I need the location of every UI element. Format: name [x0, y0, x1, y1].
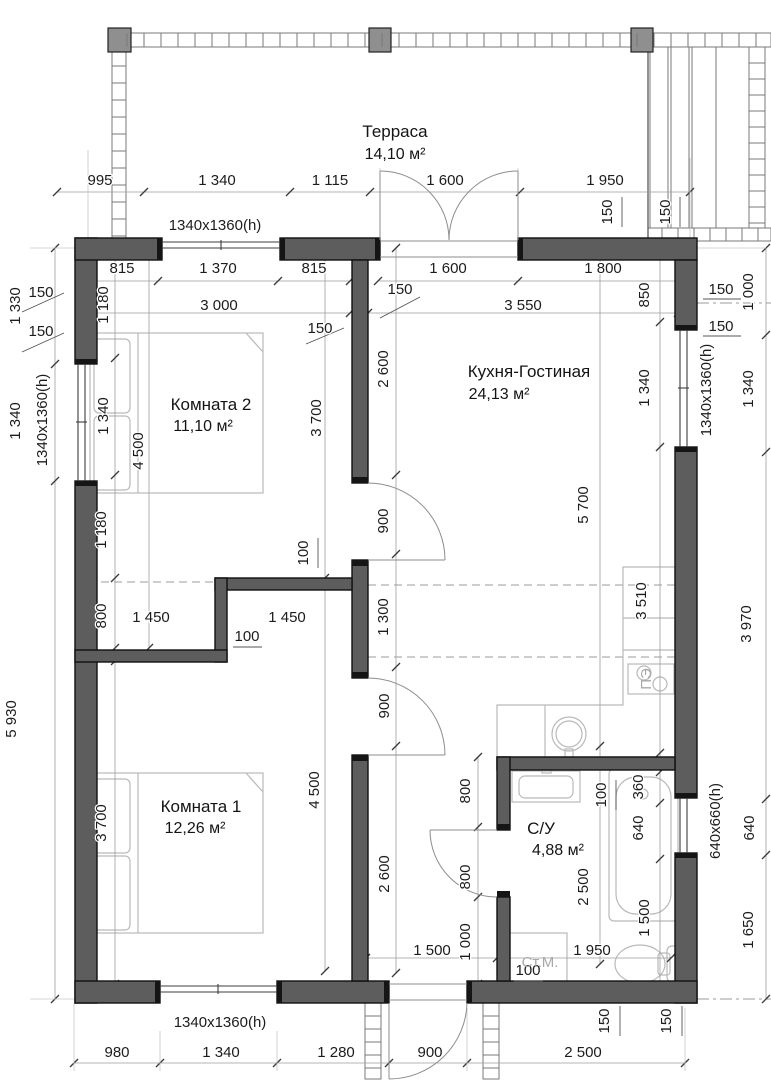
room-name: Кухня-Гостиная: [468, 362, 591, 381]
dimension-label: 1 800: [584, 260, 622, 277]
dimension-label: 1 450: [132, 609, 170, 626]
wall-bath-left-upper: [497, 757, 510, 830]
wall-left-lower: [75, 481, 97, 1003]
dimension-label: 1 180: [95, 286, 112, 324]
dimension-label: 1 280: [317, 1044, 355, 1061]
room-name: Комната 1: [161, 797, 242, 816]
dimension-label: 800: [457, 778, 474, 803]
dimension-label: 1 950: [586, 172, 624, 189]
terrace-top-railing: [110, 33, 771, 47]
room-name: С/У: [527, 819, 555, 838]
dimension-label: 1 340: [636, 369, 653, 407]
dimension-label: 150: [708, 318, 733, 335]
dimension-label: 3 700: [93, 804, 110, 842]
window-room2-left: [76, 364, 87, 481]
wall-bottom-3: [467, 981, 697, 1003]
dimension-label: 3 970: [738, 605, 755, 643]
wall-bottom-2: [277, 981, 389, 1003]
dimension-label: 150: [28, 323, 53, 340]
room-area: 24,13 м²: [469, 386, 530, 403]
floor-plan-svg: 9951 3401 1151 6001 9501340x1360(h)15015…: [0, 0, 771, 1080]
dimension-label: 640x660(h): [707, 783, 724, 859]
dimension-label: 815: [109, 260, 134, 277]
dimension-label: 900: [417, 1044, 442, 1061]
dimension-label: 640: [630, 815, 647, 840]
dimension-label: 1 600: [426, 172, 464, 189]
room-name: Терраса: [362, 122, 428, 141]
dimension-label: 1 340: [202, 1044, 240, 1061]
wall-bath-top: [497, 757, 675, 770]
terrace-left-railing: [112, 50, 126, 238]
dimension-label: 1 950: [573, 942, 611, 959]
equipment-label: Ст.М.: [522, 954, 559, 971]
dimension-label: 150: [658, 1008, 675, 1033]
dimension-label: 1 340: [198, 172, 236, 189]
dimension-label: 850: [636, 282, 653, 307]
dimension-label: 1 330: [7, 287, 24, 325]
dimension-label: 5 930: [3, 700, 20, 738]
dimension-label: 150: [307, 320, 332, 337]
dimension-label: 360: [630, 774, 647, 799]
dimension-label: 2 600: [375, 350, 392, 388]
dimension-label: 1340x1360(h): [169, 217, 262, 234]
dimension-label: 1 115: [312, 172, 348, 189]
dimension-label: 900: [376, 693, 393, 718]
room-area: 4,88 м²: [532, 842, 585, 859]
dimension-label: 1 180: [93, 511, 110, 549]
wall-bath-left-lower: [497, 897, 510, 981]
dimension-label: 100: [295, 540, 312, 565]
dimension-label: 1 340: [740, 370, 757, 408]
terrace-post: [369, 28, 391, 52]
dimension-label: 150: [387, 281, 412, 298]
dimension-label: 640: [741, 815, 758, 840]
wall-central-mid: [352, 560, 368, 678]
window-room2-terrace: [162, 240, 280, 250]
terrace-right-railing: [749, 47, 765, 228]
dimension-label: 1 500: [413, 942, 451, 959]
dimension-label: 4 500: [130, 432, 147, 470]
dimension-label: 1340x1360(h): [34, 374, 51, 467]
dimension-label: 100: [593, 782, 610, 807]
terrace-post: [108, 28, 131, 52]
wall-right-2: [675, 447, 697, 798]
dimension-label: 1 650: [740, 911, 757, 949]
dimension-label: 150: [599, 199, 616, 224]
window-kitchen-right: [678, 330, 689, 447]
dimension-label: 5 700: [575, 486, 592, 524]
wall-top-2: [280, 238, 380, 260]
dimension-label: 1340x1360(h): [174, 1014, 267, 1031]
wall-room1-top: [75, 650, 227, 662]
dimension-label: 1 000: [740, 273, 757, 311]
dimension-label: 980: [104, 1044, 129, 1061]
wall-bottom-1: [75, 981, 160, 1003]
window-bath-right: [680, 798, 687, 853]
dimension-label: 900: [375, 508, 392, 533]
dimension-label: 2 600: [376, 855, 393, 893]
dimension-label: 1 450: [268, 609, 306, 626]
dimension-label: 1 370: [199, 260, 237, 277]
room-name: Комната 2: [171, 395, 252, 414]
dimension-label: 150: [28, 284, 53, 301]
room-area: 11,10 м²: [173, 418, 233, 435]
window-room1-bottom: [160, 984, 277, 994]
dimension-label: 150: [596, 1008, 613, 1033]
wall-closet-upper: [215, 578, 352, 590]
dimension-label: 1 000: [457, 923, 474, 961]
kitchen-sink: [552, 717, 586, 757]
wall-top-3: [518, 238, 697, 260]
wall-central-upper: [352, 260, 368, 483]
floor-plan-drawing: 9951 3401 1151 6001 9501340x1360(h)15015…: [0, 0, 771, 1080]
dimension-label: 100: [234, 628, 259, 645]
dimension-label: 1340x1360(h): [698, 344, 715, 437]
dimension-label: 1 340: [7, 402, 24, 440]
entry-door: [389, 984, 467, 1079]
dimension-label: 1 500: [636, 899, 653, 937]
dimension-label: 1 600: [429, 260, 467, 277]
room-area: 14,10 м²: [365, 146, 426, 163]
dimension-label: 815: [301, 260, 326, 277]
room-area: 12,26 м²: [165, 820, 226, 837]
dimension-label: 3 510: [633, 582, 650, 620]
dimension-label: 3 550: [504, 297, 542, 314]
dimension-label: 995: [87, 172, 112, 189]
dimension-label: 150: [657, 199, 674, 224]
dimension-label: 1 340: [95, 397, 112, 435]
dimension-label: 2 500: [564, 1044, 602, 1061]
wall-right-1: [675, 260, 697, 330]
dimension-label: 3 700: [308, 399, 325, 437]
dimension-label: 1 300: [375, 598, 392, 636]
dimension-label: 800: [93, 603, 110, 628]
terrace-post: [631, 28, 653, 52]
wall-central-lower: [352, 755, 368, 981]
dimension-label: 800: [457, 864, 474, 889]
dimension-label: 150: [708, 281, 733, 298]
wall-top-1: [75, 238, 162, 260]
dimension-label: 3 000: [200, 297, 238, 314]
dimension-label: 4 500: [306, 771, 323, 809]
dimension-label: 2 500: [575, 868, 592, 906]
equipment-label: ПЭ: [638, 668, 655, 690]
dimension-labels: 9951 3401 1151 6001 9501340x1360(h)15015…: [3, 172, 758, 1061]
